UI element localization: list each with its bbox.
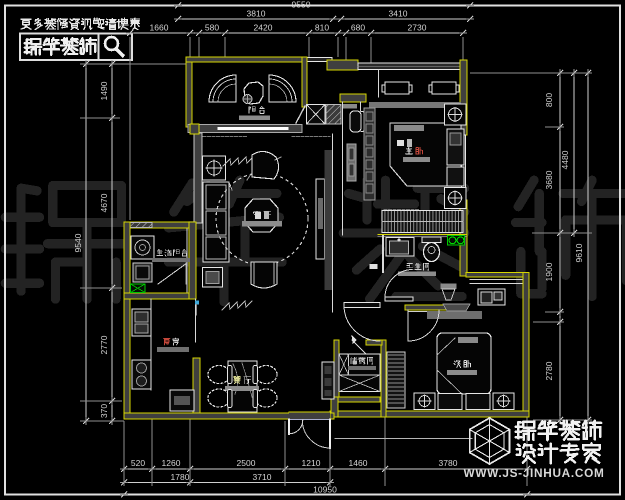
svg-text:1260: 1260	[162, 458, 181, 468]
svg-text:4670: 4670	[99, 193, 109, 212]
svg-text:4480: 4480	[560, 150, 570, 169]
svg-text:3810: 3810	[247, 9, 266, 19]
svg-text:9610: 9610	[574, 243, 584, 262]
svg-text:1900: 1900	[544, 262, 554, 281]
svg-text:2770: 2770	[99, 335, 109, 354]
svg-text:800: 800	[544, 93, 554, 107]
svg-text:3710: 3710	[253, 472, 272, 482]
svg-text:2780: 2780	[544, 361, 554, 380]
svg-text:2420: 2420	[254, 23, 273, 33]
svg-text:1460: 1460	[349, 458, 368, 468]
svg-text:370: 370	[99, 404, 109, 418]
svg-text:680: 680	[351, 23, 365, 33]
svg-text:580: 580	[205, 23, 219, 33]
svg-text:3780: 3780	[439, 458, 458, 468]
svg-text:1490: 1490	[99, 81, 109, 100]
svg-text:2500: 2500	[237, 458, 256, 468]
svg-text:1210: 1210	[302, 458, 321, 468]
svg-text:1660: 1660	[150, 23, 169, 33]
svg-text:2730: 2730	[408, 23, 427, 33]
svg-text:3410: 3410	[389, 9, 408, 19]
svg-text:520: 520	[131, 458, 145, 468]
svg-text:9550: 9550	[292, 0, 311, 10]
svg-text:WWW.JS-JINHUA.COM: WWW.JS-JINHUA.COM	[463, 466, 604, 480]
svg-text:1780: 1780	[171, 472, 190, 482]
svg-text:9540: 9540	[73, 233, 83, 252]
svg-text:10950: 10950	[313, 485, 337, 495]
svg-text:3680: 3680	[544, 170, 554, 189]
svg-text:810: 810	[315, 23, 329, 33]
